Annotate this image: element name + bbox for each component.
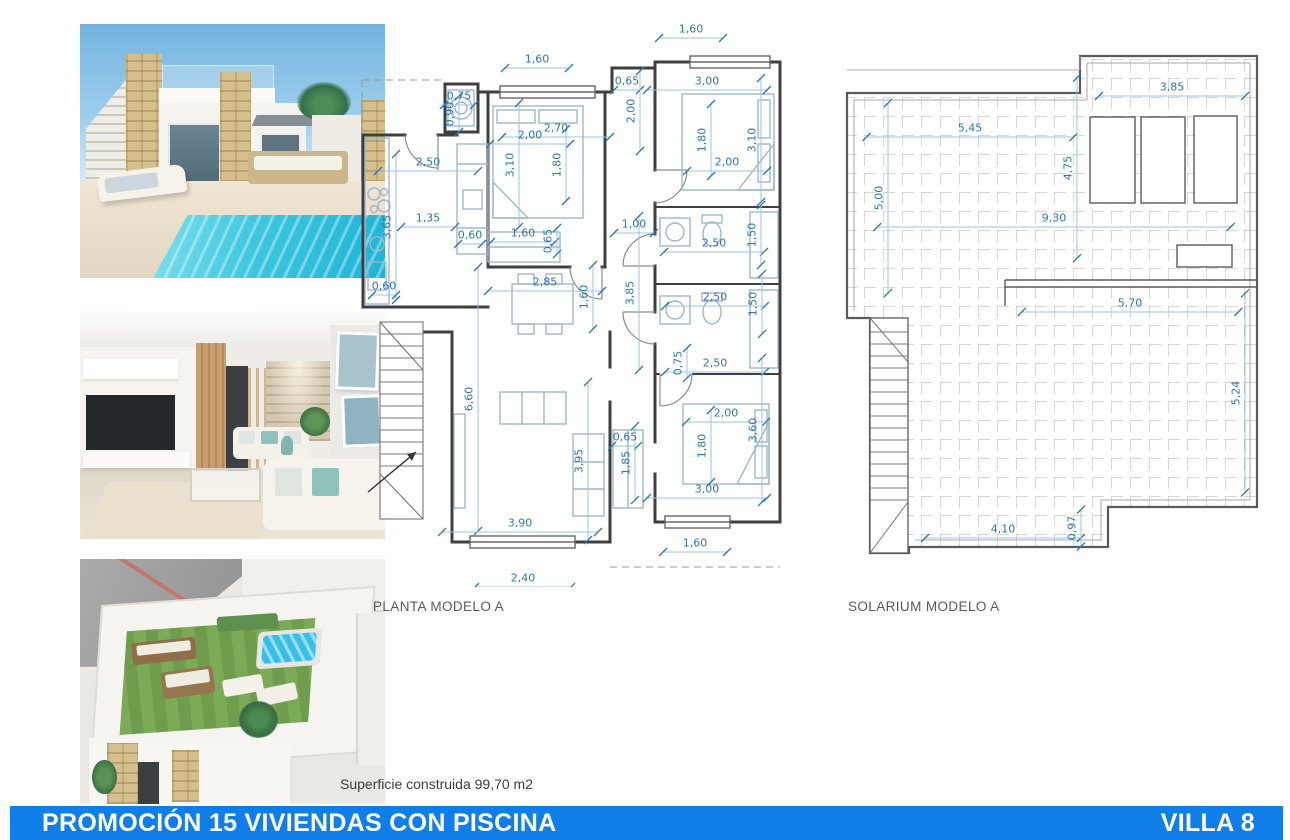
bathroom-fixtures [660, 212, 778, 368]
planta-caption: PLANTA MODELO A [373, 599, 504, 614]
swimming-pool [153, 215, 385, 279]
wood-panel [196, 343, 227, 471]
jacuzzi [256, 628, 322, 669]
solarium-caption: SOLARIUM MODELO A [848, 599, 1000, 614]
windows [470, 56, 770, 548]
floorplan-solarium: 3,855,455,004,759,305,705,244,100,97 [845, 40, 1270, 565]
sofa [233, 427, 309, 459]
plant [92, 760, 116, 794]
neighbor-building [356, 613, 385, 765]
planta-drawing [360, 22, 790, 587]
doors [405, 135, 692, 406]
photo-villa-exterior [80, 24, 385, 278]
photo-living-room [80, 311, 385, 539]
footer-bar: PROMOCIÓN 15 VIVIENDAS CON PISCINA VILLA… [10, 806, 1283, 840]
planta-dimension-lines [368, 34, 771, 587]
photo-rooftop-solarium [80, 559, 385, 804]
furniture [454, 94, 774, 516]
promo-title: PROMOCIÓN 15 VIVIENDAS CON PISCINA [42, 809, 556, 838]
roof-eave-lines [847, 56, 1080, 70]
solarium-drawing [845, 40, 1270, 565]
floorplan-planta: 1,601,600,750,902,700,652,003,002,003,10… [360, 22, 790, 587]
plant [239, 701, 279, 738]
kitchen-fixtures [365, 138, 488, 304]
shelf [83, 359, 178, 380]
built-area-note: Superficie construida 99,70 m2 [340, 776, 533, 792]
roof-stairs [870, 318, 908, 553]
stone-pillar [172, 750, 199, 801]
glass-railing [162, 65, 274, 90]
table-lamp [281, 436, 293, 454]
stairs [368, 322, 423, 519]
tv-screen [86, 395, 174, 450]
villa-number: VILLA 8 [1161, 809, 1255, 838]
coffee-table [190, 468, 261, 502]
tv-bench [83, 452, 190, 468]
brochure-page: 1,601,600,750,902,700,652,003,002,003,10… [0, 0, 1290, 840]
outdoor-sofa [248, 151, 349, 184]
